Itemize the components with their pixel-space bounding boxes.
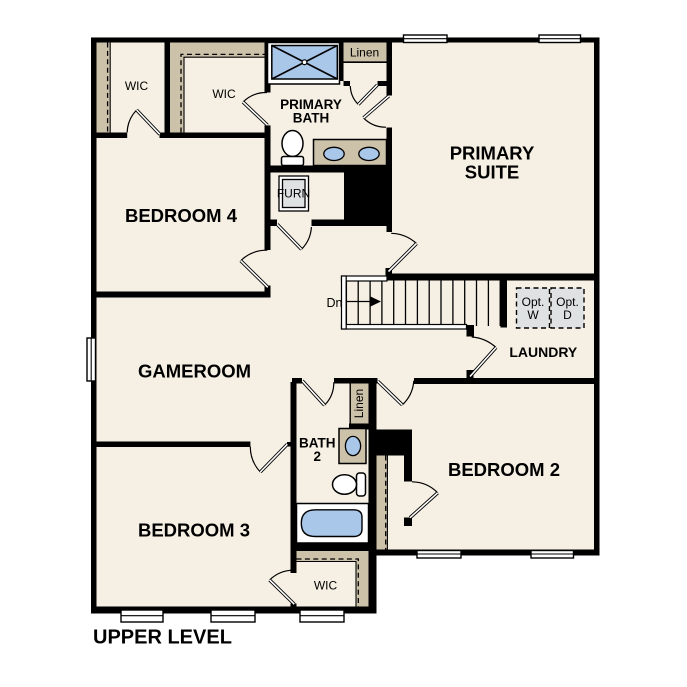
- svg-text:WIC: WIC: [314, 579, 338, 593]
- svg-text:W: W: [527, 308, 539, 322]
- svg-text:GAMEROOM: GAMEROOM: [138, 361, 251, 382]
- svg-text:PRIMARY: PRIMARY: [450, 143, 535, 164]
- svg-text:Opt.: Opt.: [556, 295, 579, 309]
- svg-text:Linen: Linen: [350, 46, 379, 60]
- svg-text:BEDROOM 2: BEDROOM 2: [448, 459, 560, 480]
- svg-text:Opt.: Opt.: [522, 295, 545, 309]
- svg-text:D: D: [563, 308, 572, 322]
- svg-text:FURN: FURN: [277, 187, 310, 201]
- svg-text:BATH: BATH: [293, 110, 330, 125]
- svg-text:WIC: WIC: [212, 87, 236, 101]
- svg-text:WIC: WIC: [125, 79, 149, 93]
- svg-text:2: 2: [314, 449, 322, 464]
- svg-text:LAUNDRY: LAUNDRY: [509, 344, 578, 360]
- svg-text:BEDROOM 4: BEDROOM 4: [125, 205, 238, 226]
- svg-text:BEDROOM 3: BEDROOM 3: [138, 520, 250, 541]
- svg-text:UPPER LEVEL: UPPER LEVEL: [93, 627, 232, 649]
- svg-text:SUITE: SUITE: [465, 162, 519, 183]
- svg-text:Linen: Linen: [352, 389, 366, 418]
- svg-text:Dn: Dn: [327, 296, 343, 310]
